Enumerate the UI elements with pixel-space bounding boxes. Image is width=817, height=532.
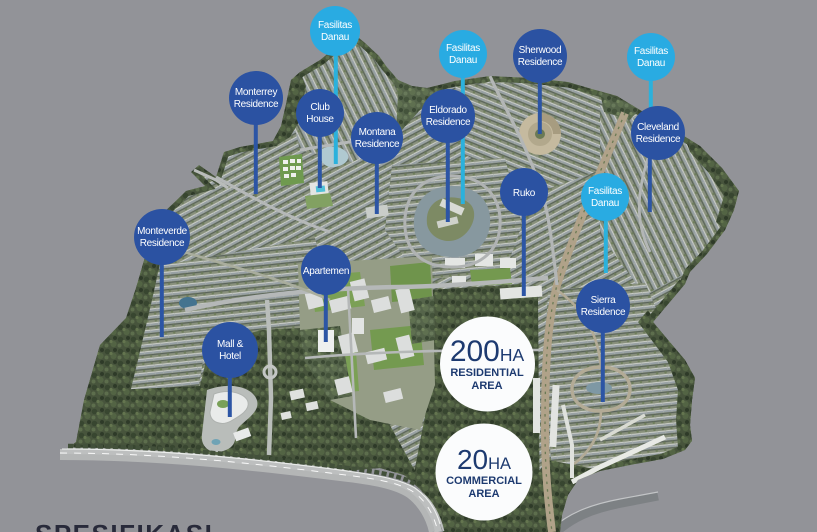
svg-text:AREA: AREA <box>471 380 502 392</box>
svg-text:Residence: Residence <box>355 139 400 150</box>
svg-text:Ruko: Ruko <box>513 188 536 199</box>
svg-text:Sierra: Sierra <box>591 295 617 306</box>
svg-text:Fasilitas: Fasilitas <box>588 186 622 197</box>
svg-text:Residence: Residence <box>234 99 279 110</box>
svg-text:Fasilitas: Fasilitas <box>446 43 480 54</box>
svg-text:Monterrey: Monterrey <box>235 87 278 98</box>
svg-text:Mall &: Mall & <box>217 339 244 350</box>
svg-text:Hotel: Hotel <box>219 351 241 362</box>
svg-text:Sherwood: Sherwood <box>519 45 562 56</box>
svg-text:House: House <box>306 114 334 125</box>
svg-text:RESIDENTIAL: RESIDENTIAL <box>450 367 524 379</box>
svg-text:Residence: Residence <box>426 117 471 128</box>
svg-text:Club: Club <box>310 102 330 113</box>
svg-text:Danau: Danau <box>637 58 665 69</box>
svg-text:Residence: Residence <box>636 134 681 145</box>
svg-text:Eldorado: Eldorado <box>429 105 467 116</box>
svg-text:Danau: Danau <box>321 32 349 43</box>
svg-text:Fasilitas: Fasilitas <box>318 20 352 31</box>
svg-text:Cleveland: Cleveland <box>637 122 679 133</box>
svg-text:Residence: Residence <box>140 238 185 249</box>
svg-text:Fasilitas: Fasilitas <box>634 46 668 57</box>
svg-text:Montana: Montana <box>359 127 397 138</box>
svg-text:Apartemen: Apartemen <box>303 266 349 277</box>
svg-text:AREA: AREA <box>468 488 499 500</box>
svg-text:SPESIFIKASI: SPESIFIKASI <box>35 519 213 532</box>
svg-text:Danau: Danau <box>449 55 477 66</box>
svg-text:Residence: Residence <box>518 57 563 68</box>
svg-text:Monteverde: Monteverde <box>137 226 188 237</box>
svg-text:COMMERCIAL: COMMERCIAL <box>446 475 522 487</box>
svg-text:Danau: Danau <box>591 198 619 209</box>
svg-text:Residence: Residence <box>581 307 626 318</box>
